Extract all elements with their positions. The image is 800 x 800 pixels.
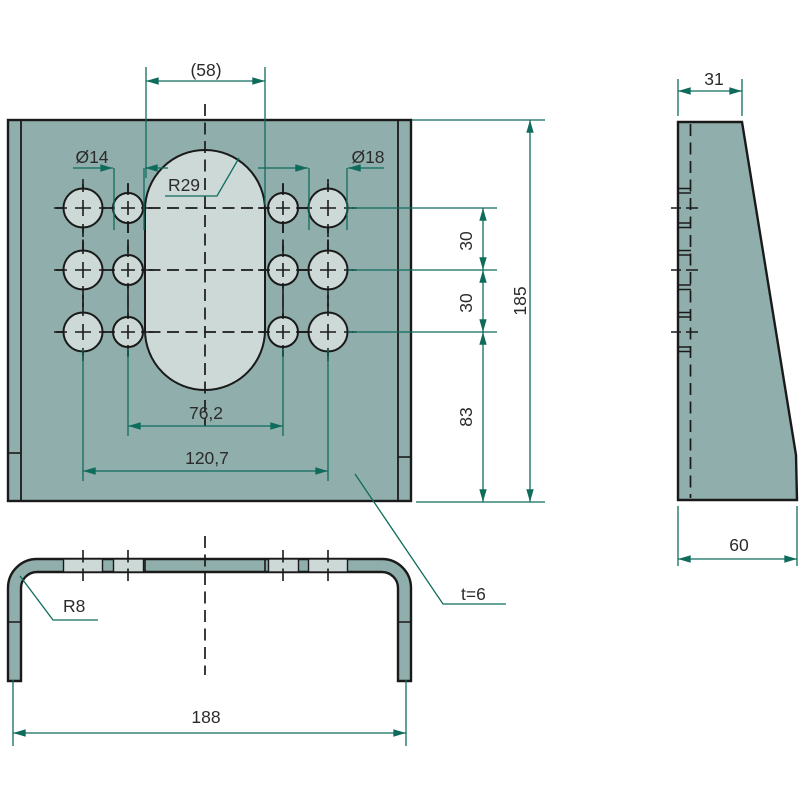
dia-large-label: Ø18 <box>351 147 384 167</box>
side-bottom-width-label: 60 <box>729 535 749 555</box>
dimension-corner-radius: R8 <box>20 576 98 620</box>
side-profile <box>678 122 797 500</box>
row-spacing-bottom-label: 30 <box>456 293 476 313</box>
technical-drawing-page: (58) Ø14 Ø18 R29 76,2 <box>0 0 800 800</box>
slot-width-label: (58) <box>190 60 221 80</box>
outer-hole-span-label: 120,7 <box>185 448 229 468</box>
inner-hole-span-label: 76,2 <box>189 403 223 423</box>
bottom-offset-label: 83 <box>456 407 476 426</box>
drawing-canvas: (58) Ø14 Ø18 R29 76,2 <box>0 0 800 800</box>
side-top-width-label: 31 <box>704 69 723 89</box>
dimension-side-top-width: 31 <box>678 69 742 116</box>
dimension-side-bottom-width: 60 <box>678 506 797 566</box>
bottom-view: R8 188 <box>8 536 411 746</box>
total-height-label: 185 <box>510 286 530 315</box>
dia-small-label: Ø14 <box>75 147 108 167</box>
front-view: (58) Ø14 Ø18 R29 76,2 <box>8 60 545 604</box>
slot-radius-label: R29 <box>168 175 200 195</box>
side-view: 31 60 <box>671 69 797 566</box>
dimension-overall-width: 188 <box>13 680 406 746</box>
thickness-label: t=6 <box>461 584 486 604</box>
corner-radius-label: R8 <box>63 596 85 616</box>
overall-width-label: 188 <box>191 707 220 727</box>
row-spacing-top-label: 30 <box>456 231 476 251</box>
